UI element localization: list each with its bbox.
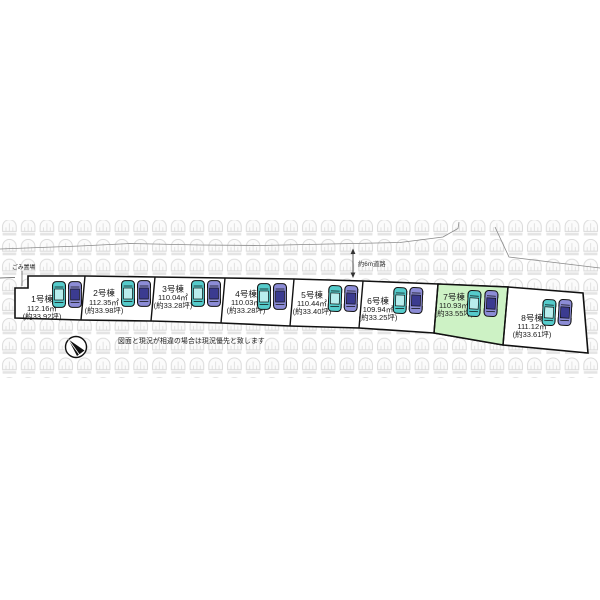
site-plan-svg: 約6m道路 ごみ置場 1号棟 112.16㎡ (約33.92坪) 2号棟 112… — [0, 0, 600, 600]
lot-1-name: 1号棟 — [31, 294, 53, 304]
car-purple-icon — [408, 287, 424, 313]
lot-6-tsubo: (約33.25坪) — [359, 312, 398, 322]
car-purple-icon — [207, 281, 222, 307]
site-plan-image: 約6m道路 ごみ置場 1号棟 112.16㎡ (約33.92坪) 2号棟 112… — [0, 0, 600, 600]
car-purple-icon — [137, 281, 152, 307]
car-purple-icon — [273, 284, 288, 310]
car-teal-icon — [466, 290, 482, 317]
lot-2-name: 2号棟 — [93, 288, 115, 298]
lot-5-tsubo: (約33.40坪) — [293, 306, 332, 316]
lot-3-tsubo: (約33.28坪) — [154, 300, 193, 310]
lot-2-tsubo: (約33.98坪) — [85, 305, 124, 315]
car-teal-icon — [541, 299, 557, 326]
car-purple-icon — [557, 299, 573, 326]
car-teal-icon — [52, 282, 67, 308]
car-teal-icon — [257, 284, 272, 310]
car-teal-icon — [191, 281, 206, 307]
lot-8-tsubo: (約33.61坪) — [513, 329, 552, 339]
road-width-label: 約6m道路 — [358, 259, 386, 268]
car-teal-icon — [327, 285, 343, 311]
north-arrow-icon — [66, 337, 87, 358]
car-purple-icon — [483, 290, 499, 317]
garbage-place-label: ごみ置場 — [12, 263, 35, 271]
car-teal-icon — [392, 287, 408, 313]
car-teal-icon — [121, 281, 136, 307]
lot-1-tsubo: (約33.92坪) — [23, 311, 62, 321]
car-purple-icon — [68, 282, 83, 308]
car-purple-icon — [343, 285, 359, 311]
disclaimer-note: 図面と現況が相違の場合は現況優先と致します — [118, 336, 265, 345]
